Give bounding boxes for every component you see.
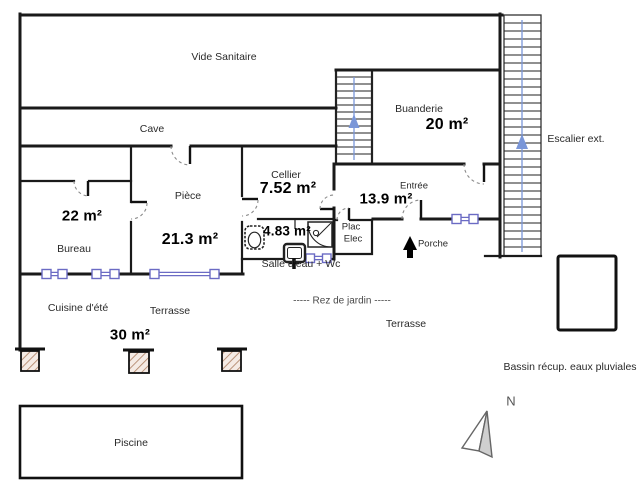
interior-staircase	[336, 70, 372, 164]
room-label-piscine: Piscine	[114, 437, 148, 449]
label-rez-de-jardin: ----- Rez de jardin -----	[293, 296, 391, 307]
room-label-cave: Cave	[140, 123, 165, 135]
area-label-entree: 13.9 m²	[359, 191, 412, 208]
exterior-staircase	[504, 15, 541, 256]
area-label-cellier: 7.52 m²	[260, 180, 317, 198]
room-label-bureau: Bureau	[57, 243, 91, 255]
area-label-bureau: 22 m²	[62, 208, 102, 225]
room-label-terrasse-1: Terrasse	[150, 305, 190, 317]
compass-icon	[462, 411, 492, 457]
terrace-pillars	[15, 349, 247, 373]
shower-icon	[308, 222, 332, 247]
floor-plan: Vide Sanitaire Cave Buanderie 20 m² Cell…	[0, 0, 640, 480]
room-label-cuisine-ete: Cuisine d'été	[48, 302, 108, 314]
pillar	[129, 352, 149, 373]
pillar	[222, 351, 241, 371]
area-label-terrasse: 30 m²	[110, 327, 150, 344]
floorplan-drawing	[0, 0, 640, 480]
basin-outline	[558, 256, 616, 330]
area-label-buanderie: 20 m²	[426, 116, 469, 134]
label-escalier-ext: Escalier ext.	[547, 133, 604, 145]
room-label-vide-sanitaire: Vide Sanitaire	[191, 51, 256, 63]
pillar	[21, 351, 39, 371]
room-label-porche: Porche	[418, 239, 448, 250]
room-label-elec: Elec	[344, 234, 362, 245]
room-label-salle-eau: Salle d'eau + Wc	[262, 258, 341, 270]
area-label-salle-eau: 4.83 m²	[263, 224, 311, 239]
area-label-piece: 21.3 m²	[162, 231, 219, 249]
label-north: N	[506, 394, 515, 409]
toilet-icon	[245, 226, 264, 249]
room-label-terrasse-2: Terrasse	[386, 318, 426, 330]
porch-arrow-icon	[403, 236, 417, 258]
room-label-plac: Plac	[342, 222, 360, 233]
room-label-buanderie: Buanderie	[395, 103, 443, 115]
label-bassin: Bassin récup. eaux pluviales	[503, 361, 636, 373]
room-label-piece: Pièce	[175, 190, 201, 202]
